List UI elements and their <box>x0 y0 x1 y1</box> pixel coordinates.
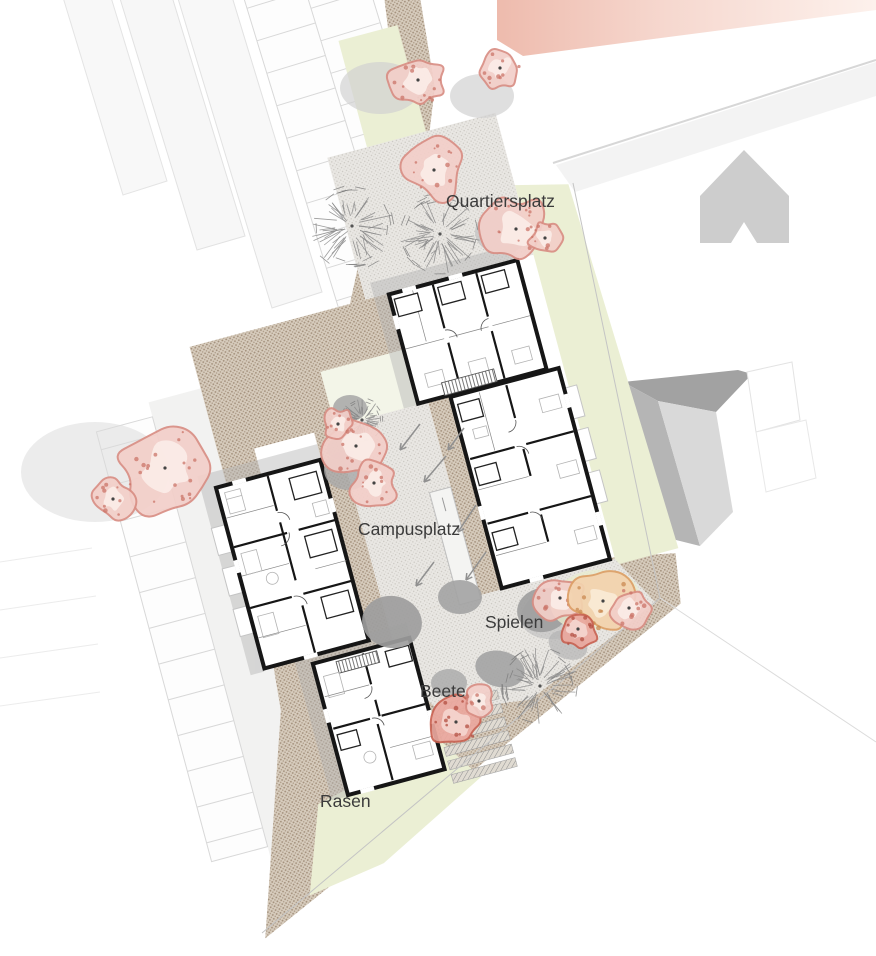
blossom-speckle <box>531 236 533 238</box>
context-faint-rows <box>0 548 100 706</box>
tree-trunk-dot <box>360 418 363 421</box>
blossom-speckle <box>567 624 570 627</box>
tree-trunk-dot <box>627 606 630 609</box>
blossom-speckle <box>580 637 584 641</box>
site-plan-drawing: Quartiersplatz Campusplatz Spielen Beete… <box>0 0 876 956</box>
blossom-speckle <box>346 467 348 469</box>
blossom-speckle <box>335 428 338 431</box>
blossom-speckle <box>346 457 349 460</box>
blossom-speckle <box>338 414 341 417</box>
blossom-speckle <box>380 476 383 479</box>
blossom-speckle <box>415 161 418 164</box>
blossom-speckle <box>544 605 549 610</box>
blossom-speckle <box>421 179 423 181</box>
blossom-speckle <box>104 483 108 487</box>
shrub-blob <box>438 580 482 614</box>
blossom-speckle <box>573 634 577 638</box>
blossom-speckle <box>450 152 452 154</box>
blossom-speckle <box>420 186 422 188</box>
blossom-speckle <box>458 733 461 736</box>
blossom-speckle <box>639 601 642 604</box>
blossom-speckle <box>101 486 105 490</box>
blossom-speckle <box>534 240 536 242</box>
tree-trunk-dot <box>336 422 339 425</box>
blossom-speckle <box>491 52 495 56</box>
blossom-speckle <box>576 608 579 611</box>
label-quartiersplatz: Quartiersplatz <box>446 191 555 211</box>
blossom-speckle <box>475 693 479 697</box>
label-campusplatz: Campusplatz <box>358 519 460 539</box>
blossom-speckle <box>642 603 647 608</box>
blossom-speckle <box>378 443 381 446</box>
blossom-speckle <box>483 71 487 75</box>
arrow-head <box>466 573 467 580</box>
blossom-speckle <box>545 246 549 250</box>
blossom-speckle <box>621 582 626 587</box>
blossom-speckle <box>385 491 387 493</box>
blossom-speckle <box>455 165 457 167</box>
tree-trunk-dot <box>438 232 441 235</box>
blossom-speckle <box>173 483 177 487</box>
blossom-speckle <box>557 587 561 591</box>
blossom-speckle <box>548 225 551 228</box>
blossom-speckle <box>526 227 530 231</box>
blossom-speckle <box>423 94 426 97</box>
blossom-speckle <box>366 500 369 503</box>
parcel-edge-line <box>553 60 876 163</box>
blossom-tree <box>465 684 492 717</box>
blossom-speckle <box>117 513 120 516</box>
blossom-speckle <box>571 617 574 620</box>
tree-trunk-dot <box>498 66 501 69</box>
blossom-speckle <box>596 626 601 631</box>
blossom-speckle <box>437 155 440 158</box>
blossom-speckle <box>410 69 414 73</box>
blossom-speckle <box>103 508 108 513</box>
blossom-speckle <box>501 73 504 76</box>
blossom-speckle <box>188 466 191 469</box>
blossom-speckle <box>378 452 381 455</box>
blossom-speckle <box>404 65 408 69</box>
blossom-speckle <box>146 467 149 470</box>
blossom-tree <box>562 615 598 649</box>
blossom-speckle <box>444 719 448 723</box>
tree-trunk-dot <box>576 627 579 630</box>
tree-trunk-dot <box>538 684 541 687</box>
blossom-speckle <box>413 171 415 173</box>
blossom-tree <box>387 60 444 104</box>
blossom-speckle <box>341 443 344 446</box>
blossom-speckle <box>466 702 468 704</box>
blossom-speckle <box>436 144 439 147</box>
blossom-speckle <box>362 485 364 487</box>
blossom-speckle <box>636 607 640 611</box>
blossom-speckle <box>360 435 362 437</box>
blossom-speckle <box>103 505 106 508</box>
tree-trunk-dot <box>432 168 435 171</box>
blossom-speckle <box>326 426 329 429</box>
blossom-speckle <box>138 471 142 475</box>
blossom-speckle <box>181 497 185 501</box>
blossom-speckle <box>567 643 569 645</box>
blossom-speckle <box>445 724 448 727</box>
blossom-speckle <box>470 701 473 704</box>
blossom-speckle <box>620 622 624 626</box>
blossom-speckle <box>420 99 422 101</box>
blossom-speckle <box>534 229 536 231</box>
blossom-speckle <box>445 163 450 168</box>
blossom-speckle <box>487 76 491 80</box>
blossom-speckle <box>466 694 469 697</box>
blossom-speckle <box>498 230 501 233</box>
blossom-speckle <box>350 459 354 463</box>
blossom-speckle <box>501 59 504 62</box>
blossom-speckle <box>338 466 343 471</box>
blossom-speckle <box>499 76 502 79</box>
blossom-speckle <box>129 483 131 485</box>
blossom-speckle <box>558 582 561 585</box>
tree-branch <box>361 407 362 414</box>
blossom-tree <box>480 49 521 89</box>
blossom-speckle <box>380 480 383 483</box>
blossom-speckle <box>600 610 603 613</box>
blossom-speckle <box>118 499 121 502</box>
arrow-head <box>448 443 449 450</box>
tree-trunk-dot <box>477 699 480 702</box>
blossom-speckle <box>471 735 474 738</box>
tree-trunk-dot <box>354 444 357 447</box>
blossom-speckle <box>182 431 184 433</box>
blossom-speckle <box>433 87 436 90</box>
blossom-speckle <box>635 602 638 605</box>
blossom-speckle <box>189 497 191 499</box>
context-roof-wedge <box>700 150 789 243</box>
tree-trunk-dot <box>416 78 419 81</box>
blossom-speckle <box>411 65 415 69</box>
blossom-speckle <box>380 497 384 501</box>
blossom-speckle <box>481 705 486 710</box>
site-plan-canvas: Quartiersplatz Campusplatz Spielen Beete… <box>0 0 876 956</box>
blossom-speckle <box>364 475 368 479</box>
blossom-speckle <box>374 468 378 472</box>
blossom-speckle <box>577 586 580 589</box>
tree-trunk-dot <box>558 596 561 599</box>
tree-trunk-dot <box>111 497 114 500</box>
context-building-outline <box>747 362 800 432</box>
blossom-speckle <box>434 721 437 724</box>
blossom-speckle <box>465 724 469 728</box>
context-building-outline <box>756 420 816 492</box>
blossom-speckle <box>393 81 397 85</box>
blossom-speckle <box>537 596 541 600</box>
blossom-speckle <box>95 496 98 499</box>
blossom-speckle <box>517 65 520 68</box>
blossom-speckle <box>543 589 546 592</box>
blossom-speckle <box>153 501 155 503</box>
blossom-speckle <box>528 214 530 216</box>
blossom-speckle <box>369 464 374 469</box>
blossom-speckle <box>454 706 459 711</box>
label-spielen: Spielen <box>485 612 543 632</box>
tree-trunk-dot <box>454 720 457 723</box>
blossom-speckle <box>489 82 491 84</box>
blossom-speckle <box>333 412 336 415</box>
blossom-speckle <box>629 591 632 594</box>
street-red-band <box>497 0 876 56</box>
blossom-speckle <box>588 623 592 627</box>
blossom-speckle <box>622 589 625 592</box>
blossom-speckle <box>347 418 350 421</box>
blossom-speckle <box>183 462 186 465</box>
tree-trunk-dot <box>372 481 375 484</box>
blossom-speckle <box>578 610 582 614</box>
blossom-speckle <box>177 438 180 441</box>
blossom-speckle <box>537 225 540 228</box>
blossom-speckle <box>116 486 118 488</box>
tree-trunk-dot <box>601 599 604 602</box>
blossom-speckle <box>443 701 447 705</box>
tree-trunk-dot <box>543 236 546 239</box>
blossom-speckle <box>400 96 404 100</box>
blossom-speckle <box>352 430 355 433</box>
blossom-speckle <box>154 453 158 457</box>
label-rasen: Rasen <box>320 791 371 811</box>
blossom-speckle <box>582 595 586 599</box>
parcel-line <box>660 598 876 742</box>
blossom-speckle <box>530 226 533 229</box>
blossom-speckle <box>402 85 405 88</box>
blossom-speckle <box>188 479 192 483</box>
blossom-speckle <box>141 463 145 467</box>
blossom-speckle <box>583 616 587 620</box>
tree-trunk-dot <box>163 466 166 469</box>
label-beete: Beete <box>420 681 466 701</box>
arrow-head <box>416 579 417 586</box>
blossom-speckle <box>362 482 364 484</box>
context-roof-band <box>556 62 876 192</box>
blossom-speckle <box>430 98 434 102</box>
blossom-speckle <box>448 179 452 183</box>
blossom-speckle <box>188 492 192 496</box>
blossom-speckle <box>447 716 450 719</box>
blossom-speckle <box>435 183 440 188</box>
blossom-speckle <box>346 430 350 434</box>
blossom-speckle <box>134 457 138 461</box>
tree-trunk-dot <box>350 224 353 227</box>
blossom-speckle <box>438 78 441 81</box>
blossom-speckle <box>193 458 196 461</box>
blossom-speckle <box>518 240 520 242</box>
blossom-speckle <box>330 425 333 428</box>
tree-trunk-dot <box>514 227 517 230</box>
blossom-speckle <box>629 614 634 619</box>
blossom-speckle <box>434 147 436 149</box>
blossom-speckle <box>454 733 458 737</box>
